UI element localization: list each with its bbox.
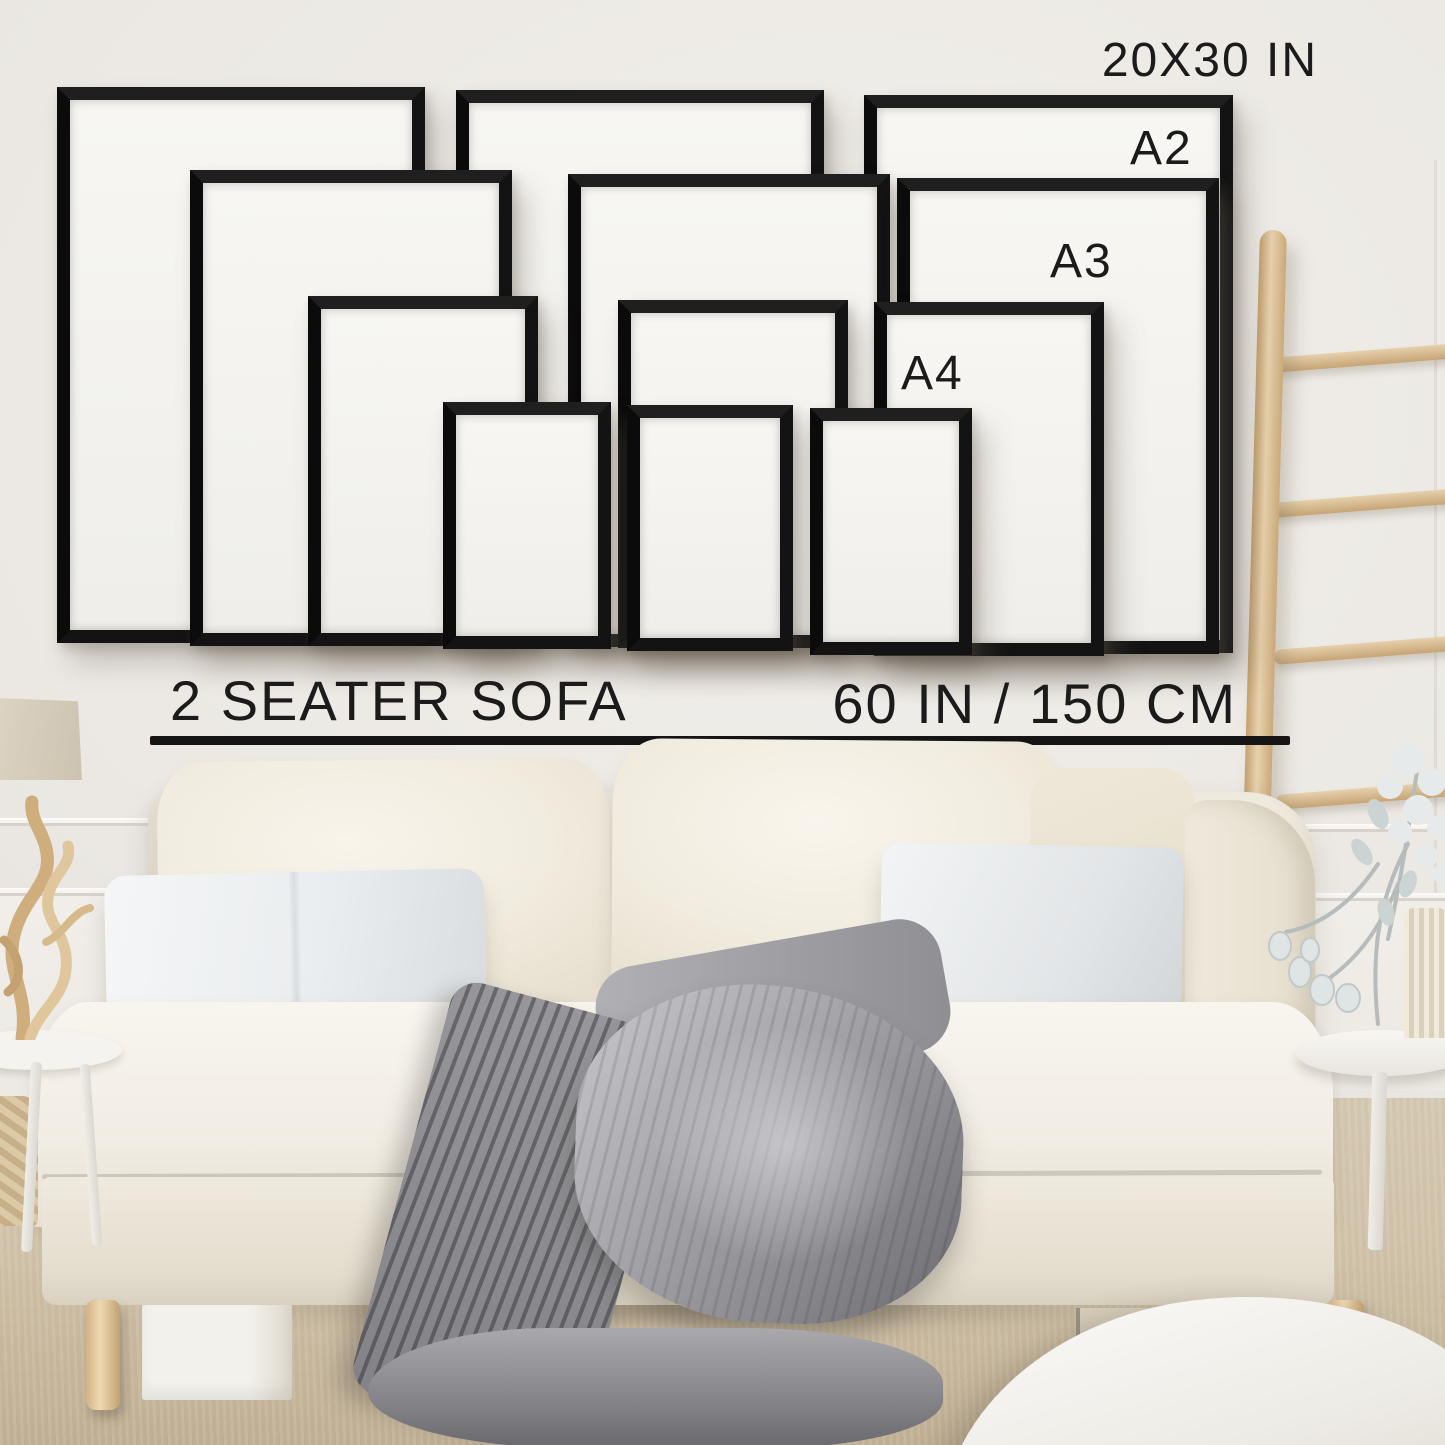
storage-box-under-sofa-left <box>142 1304 292 1400</box>
picture-frame-a4-left <box>443 402 611 649</box>
picture-frame-a4-right <box>810 408 972 655</box>
throw-blanket-floor-pool <box>368 1328 943 1445</box>
sofa-width-label: 60 IN / 150 CM <box>832 671 1237 736</box>
size-label-a3: A3 <box>1050 234 1113 289</box>
throw-blanket-highlight <box>655 1025 915 1265</box>
size-label-a2: A2 <box>1130 121 1193 176</box>
size-guide-scene: 20X30 IN A2 A3 A4 2 SEATER SOFA 60 IN / … <box>0 0 1445 1445</box>
sofa-type-label: 2 SEATER SOFA <box>170 668 628 733</box>
driftwood-sculpture <box>0 790 108 1040</box>
size-label-20x30: 20X30 IN <box>1102 33 1318 88</box>
table-lamp-shade <box>0 698 82 780</box>
eucalyptus-bouquet <box>1258 724 1445 1074</box>
sofa-leg-left <box>86 1300 120 1410</box>
picture-frame-a4-middle <box>627 405 793 651</box>
size-label-a4: A4 <box>901 346 964 401</box>
